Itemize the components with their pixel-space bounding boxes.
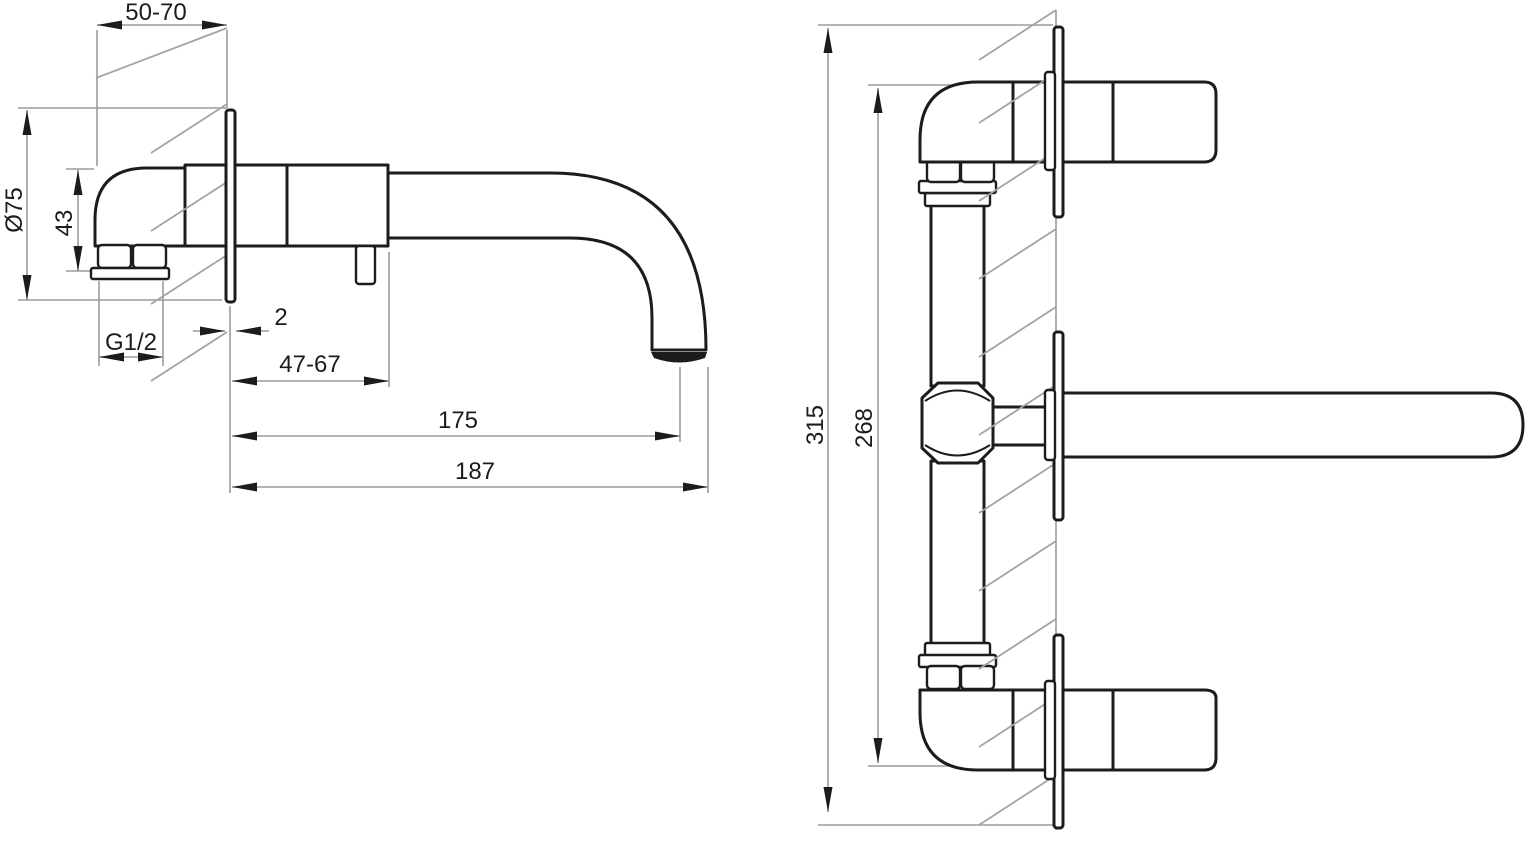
connection-flange [91, 268, 169, 279]
dim-label-escutcheon-diameter: Ø75 [1, 187, 28, 232]
dim-label-connection-height: 268 [851, 408, 878, 448]
spout-side [388, 173, 706, 350]
dim-label-body-projection: 47-67 [279, 351, 340, 378]
front-view [919, 82, 1523, 770]
dim-label-plate-thickness: 2 [274, 304, 287, 331]
dim-label-spout-reach-outlet: 175 [438, 407, 478, 434]
center-tee-octagon [922, 383, 993, 463]
supply-elbow-side [95, 168, 185, 246]
dim-label-thread-size: G1/2 [105, 329, 157, 356]
dim-label-spout-reach-overall: 187 [455, 458, 495, 485]
riser-pipe-lower [931, 461, 984, 645]
dim-label-wall-depth: 50-70 [125, 0, 186, 26]
escutcheon-hub-top [1045, 72, 1055, 170]
wall-hatching [96, 10, 1056, 825]
connection-nut-left-half [98, 245, 131, 268]
handle-unit-top [920, 82, 1216, 162]
handle-unit-bottom [920, 690, 1216, 770]
valve-tab [356, 246, 375, 284]
dim-label-body-height: 43 [51, 210, 78, 237]
aerator-tip [651, 352, 707, 363]
nut-bottom-right-half [961, 666, 994, 689]
nut-bottom-left-half [927, 666, 960, 689]
faucet-dimension-drawing: 50-70 Ø75 43 G1/2 2 47-67 175 187 315 26… [0, 0, 1536, 841]
spout-shank [993, 407, 1050, 445]
escutcheon-side [226, 110, 235, 302]
extension-lines [18, 10, 1064, 830]
side-view [91, 165, 707, 363]
connection-nut-right-half [133, 245, 166, 268]
escutcheon-hub-bottom [1045, 681, 1055, 779]
drawing-canvas: 50-70 Ø75 43 G1/2 2 47-67 175 187 315 26… [0, 0, 1536, 841]
dim-label-overall-height: 315 [802, 405, 829, 445]
spout-front [1050, 393, 1523, 457]
escutcheon-hub-middle [1045, 390, 1055, 460]
riser-pipe-upper [931, 204, 984, 386]
